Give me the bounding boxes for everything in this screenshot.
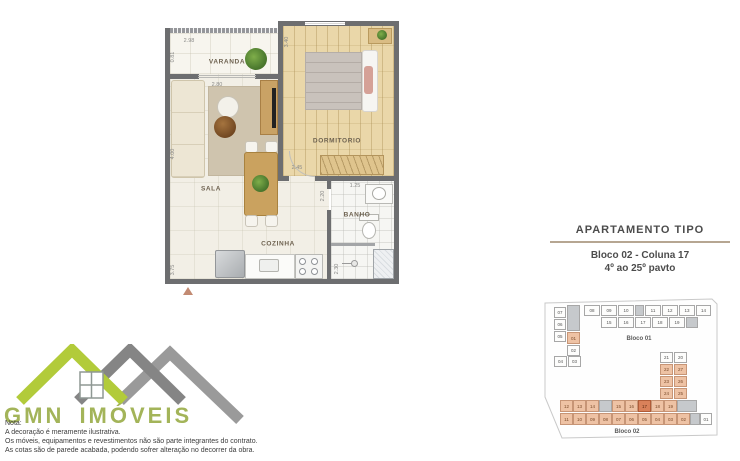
wall (345, 21, 399, 26)
wall (327, 181, 331, 189)
site-unit-cell: 13 (679, 305, 695, 316)
wall (278, 21, 283, 181)
site-unit-cell: 05 (638, 413, 651, 425)
site-unit-cell: 26 (674, 376, 687, 387)
notes-line-3: As cotas são de parede acabada, podendo … (5, 446, 258, 455)
block-column-label: Bloco 02 - Coluna 17 (548, 249, 732, 262)
site-unit-cell: 03 (664, 413, 677, 425)
site-unit-cell (686, 317, 698, 328)
site-unit-cell: 15 (601, 317, 617, 328)
site-unit-cell: 10 (573, 413, 586, 425)
dimension-label: 2.30 (334, 264, 340, 275)
site-unit-cell (567, 305, 580, 331)
site-unit-cell: 15 (612, 400, 625, 412)
site-unit-cell: 11 (645, 305, 661, 316)
apartment-type-title: APARTAMENTO TIPO (548, 224, 732, 236)
plant-icon (252, 175, 269, 192)
burner-icon (299, 258, 306, 265)
shower-head-icon (351, 260, 358, 267)
bloco02-label: Bloco 02 (614, 429, 639, 435)
site-unit-cell (635, 305, 644, 316)
brochure-page: VARANDA DORMITORIO SALA BANHO COZINHA 2.… (0, 0, 740, 461)
site-unit-cell (599, 400, 612, 412)
site-unit-cell: 01 (567, 332, 580, 344)
shower-box (373, 249, 394, 279)
pouf (217, 96, 239, 118)
site-unit-cell: 21 (660, 352, 673, 363)
kitchen-sink (259, 259, 279, 272)
site-unit-cell: 19 (669, 317, 685, 328)
burner-icon (311, 268, 318, 275)
site-unit-cell: 01 (700, 413, 712, 425)
stove (295, 254, 323, 279)
bloco01-label: Bloco 01 (626, 336, 651, 342)
dimension-label: 3.40 (284, 37, 290, 48)
site-unit-cell: 24 (660, 388, 673, 399)
site-unit-cell: 14 (586, 400, 599, 412)
dimension-label: 0.81 (170, 52, 176, 63)
bedroom-window (305, 21, 345, 26)
balcony-railing (165, 28, 283, 33)
site-unit-cell: 07 (554, 307, 566, 318)
site-unit-cell: 02 (677, 413, 690, 425)
site-unit-cell: 12 (560, 400, 573, 412)
dimension-label: 2.45 (292, 165, 303, 171)
floor-range-label: 4º ao 25º pavto (548, 262, 732, 275)
notes-title: Nota: (5, 419, 258, 428)
apartment-info-panel: APARTAMENTO TIPO Bloco 02 - Coluna 17 4º… (548, 224, 732, 275)
site-unit-cell: 25 (674, 388, 687, 399)
site-unit-cell: 03 (568, 356, 581, 367)
site-unit-cell: 16 (618, 317, 634, 328)
site-unit-cell: 10 (618, 305, 634, 316)
plant-icon (377, 30, 387, 40)
site-unit-cell: 11 (560, 413, 573, 425)
site-unit-cell: 16 (625, 400, 638, 412)
site-unit-cell: 20 (674, 352, 687, 363)
tv (272, 88, 276, 128)
site-unit-cell: 05 (554, 331, 566, 342)
plant-icon (245, 48, 267, 70)
site-unit-cell (677, 400, 697, 412)
site-unit-cell: 02 (567, 345, 580, 356)
site-unit-cell (690, 413, 700, 425)
toilet-bowl (362, 222, 376, 239)
burner-icon (311, 258, 318, 265)
site-unit-cell: 06 (554, 319, 566, 330)
site-unit-cell: 04 (554, 356, 567, 367)
room-label-varanda: VARANDA (209, 59, 245, 66)
wall (165, 279, 399, 284)
dining-chair (245, 215, 258, 227)
sofa (171, 80, 205, 178)
fridge (215, 250, 245, 278)
wall (283, 176, 289, 181)
site-unit-cell: 17 (638, 400, 651, 412)
site-unit-cell: 09 (586, 413, 599, 425)
site-unit-cell: 22 (660, 364, 673, 375)
dimension-label: 2.98 (184, 38, 195, 44)
wall (394, 21, 399, 284)
site-unit-cell: 12 (662, 305, 678, 316)
notes-line-2: Os móveis, equipamentos e revestimentos … (5, 437, 258, 446)
shower-arm (342, 263, 352, 264)
floor-plan: VARANDA DORMITORIO SALA BANHO COZINHA 2.… (165, 12, 401, 304)
coffee-table (214, 116, 236, 138)
dimension-label: 1.25 (350, 183, 361, 189)
entry-arrow-icon (183, 287, 193, 295)
room-label-dormitorio: DORMITORIO (313, 138, 361, 145)
site-unit-cell: 27 (674, 364, 687, 375)
site-unit-cell: 08 (584, 305, 600, 316)
dining-chair (265, 215, 278, 227)
site-unit-cell: 04 (651, 413, 664, 425)
site-unit-cell: 09 (601, 305, 617, 316)
dimension-label: 3.75 (170, 265, 176, 276)
site-unit-cell: 19 (664, 400, 677, 412)
site-unit-cell: 17 (635, 317, 651, 328)
site-unit-cell: 06 (625, 413, 638, 425)
burner-icon (299, 268, 306, 275)
bed-blanket (305, 52, 362, 110)
wardrobe (320, 155, 384, 175)
site-unit-cell: 18 (651, 400, 664, 412)
wall (165, 74, 199, 79)
pillow (364, 66, 373, 94)
dimension-label: 2.80 (212, 82, 223, 88)
room-label-banho: BANHO (344, 212, 371, 219)
site-unit-cell: 14 (696, 305, 711, 316)
sliding-door (198, 75, 256, 78)
notes-line-1: A decoração é meramente ilustrativa. (5, 428, 258, 437)
site-unit-cell: 23 (660, 376, 673, 387)
site-unit-cell: 18 (652, 317, 668, 328)
site-unit-cell: 07 (612, 413, 625, 425)
site-unit-cell: 13 (573, 400, 586, 412)
room-label-cozinha: COZINHA (261, 241, 295, 248)
dimension-label: 4.00 (170, 149, 176, 160)
site-map: 07060501020403080910111213141516171819 2… (542, 292, 740, 457)
shower-partition (331, 243, 375, 246)
basin (372, 187, 386, 200)
room-label-sala: SALA (201, 186, 221, 193)
title-underline (550, 241, 730, 243)
wall (327, 210, 331, 284)
site-unit-cell: 08 (599, 413, 612, 425)
notes-block: Nota: A decoração é meramente ilustrativ… (5, 419, 258, 455)
dimension-label: 2.20 (320, 191, 326, 202)
